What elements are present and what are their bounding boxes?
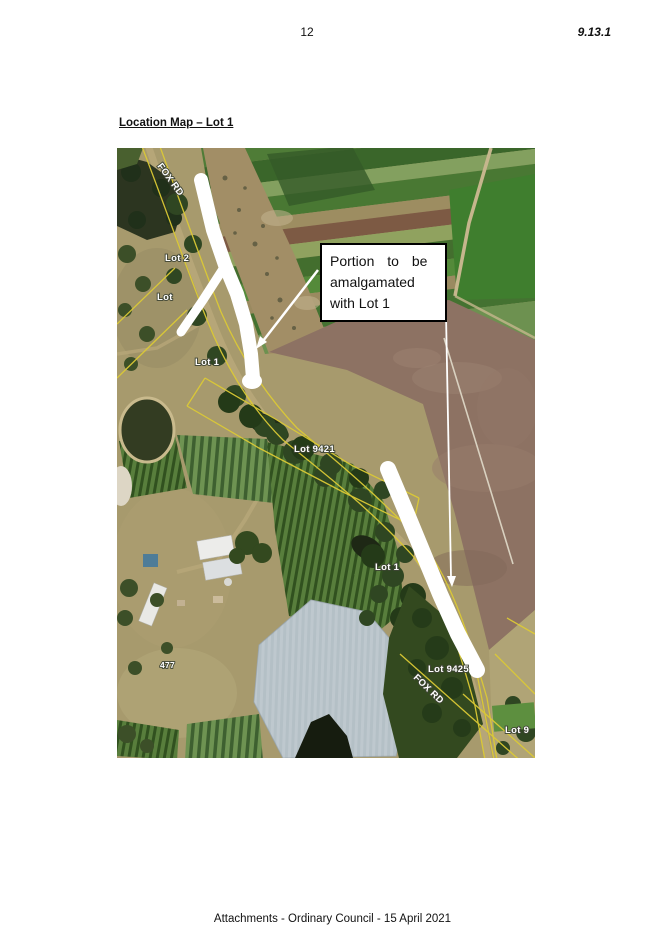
lot-2-label: Lot 2 (165, 253, 189, 264)
lot-1-mid-label: Lot 1 (375, 562, 400, 573)
page-number: 12 (0, 25, 614, 39)
callout-line-1: Portion to be (330, 251, 437, 272)
page-footer: Attachments - Ordinary Council - 15 Apri… (0, 913, 665, 925)
pool (143, 554, 158, 567)
lot-9425-label: Lot 9425 (428, 664, 469, 675)
callout-box: Portion to be amalgamated with Lot 1 (320, 243, 447, 322)
lot-partial-label: Lot (157, 292, 173, 303)
lot-1-upper-label: Lot 1 (195, 357, 220, 368)
callout-line-2: amalgamated (330, 272, 437, 293)
lot-9-partial-label: Lot 9 (505, 725, 529, 736)
agenda-reference: 9.13.1 (578, 25, 611, 39)
page-heading: Location Map – Lot 1 (119, 117, 233, 129)
document-page: 12 9.13.1 Location Map – Lot 1 (0, 0, 665, 941)
location-map: FOX RD Lot 2 Lot Lot 1 Lot 9421 Lot 1 Lo… (117, 148, 535, 758)
callout-line-3: with Lot 1 (330, 293, 437, 314)
house-number-label: 477 (160, 660, 175, 670)
aerial-imagery: FOX RD Lot 2 Lot Lot 1 Lot 9421 Lot 1 Lo… (117, 148, 535, 758)
lot-9421-label: Lot 9421 (294, 444, 335, 455)
